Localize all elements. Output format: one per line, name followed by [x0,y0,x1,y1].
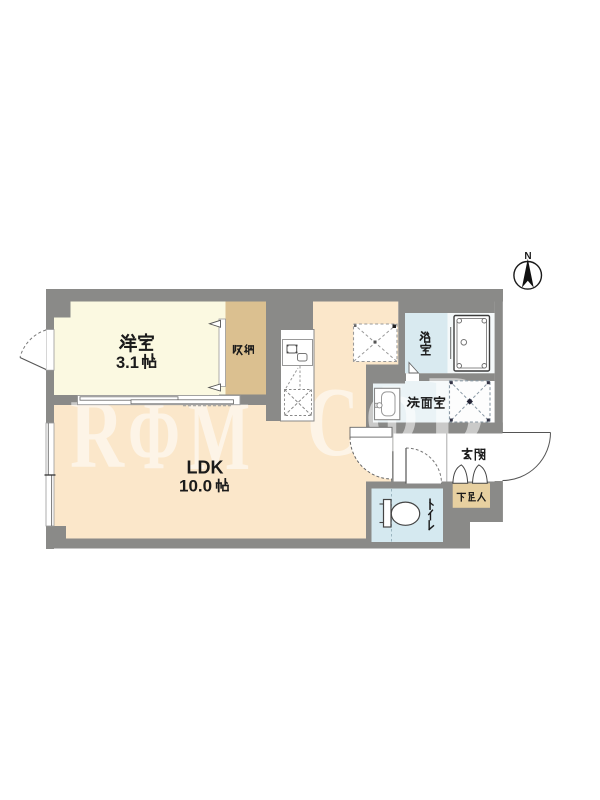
svg-text:3.1: 3.1 [116,354,139,372]
svg-text:10.0: 10.0 [179,477,212,496]
svg-text:LDK: LDK [187,458,224,478]
svg-text:N: N [524,251,531,262]
svg-text:C: C [307,368,359,477]
